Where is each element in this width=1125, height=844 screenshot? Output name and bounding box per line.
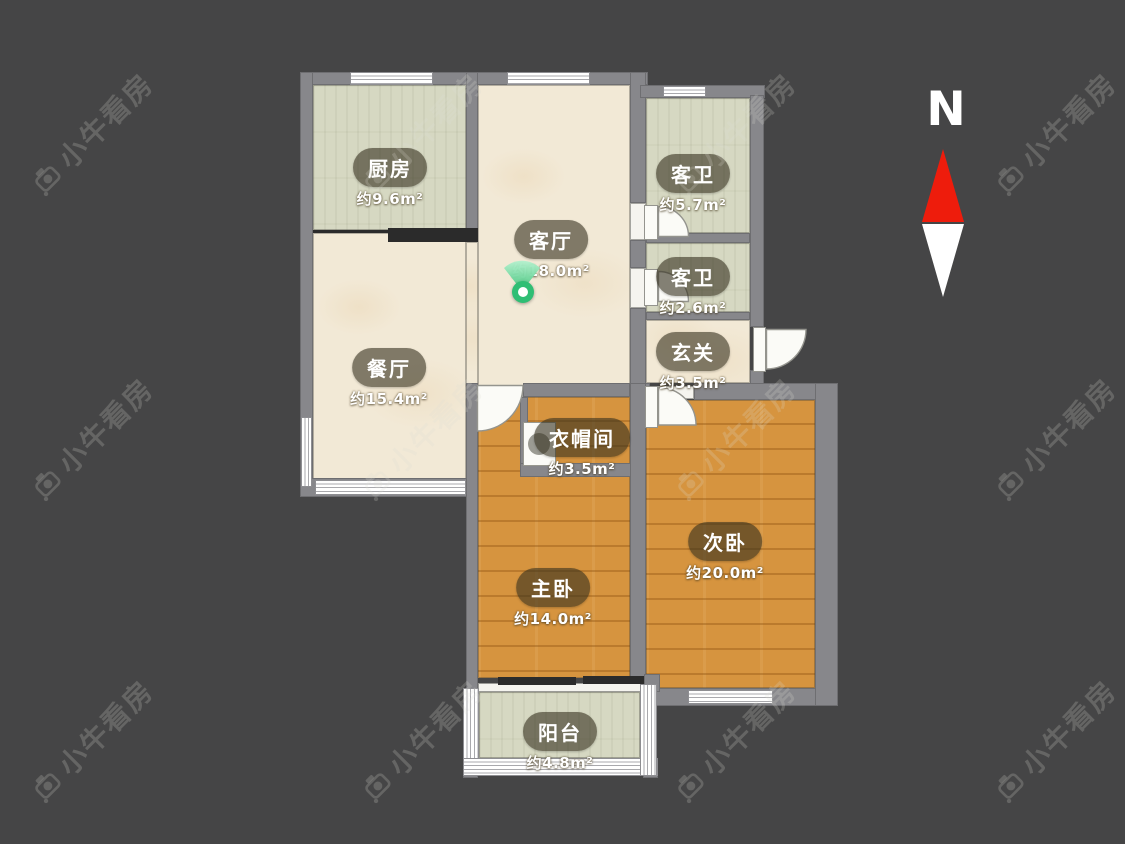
room-area: 约15.4m² [350, 388, 428, 409]
wall [750, 370, 764, 384]
niu-logo-icon [26, 157, 68, 199]
room-name: 次卧 [688, 522, 762, 561]
room-name: 玄关 [656, 332, 730, 371]
room-label-second: 次卧 约20.0m² [686, 522, 764, 583]
niu-logo-icon [26, 764, 68, 806]
master-balcony-window [583, 676, 644, 684]
wall [750, 95, 764, 327]
room-area: 约5.7m² [656, 194, 730, 215]
room-name: 客卫 [656, 257, 730, 296]
room-area: 约2.6m² [656, 297, 730, 318]
watermark-text: 小牛看房 [1011, 670, 1124, 783]
room-area: 约4.8m² [523, 752, 597, 773]
room-area: 约20.0m² [686, 562, 764, 583]
wall [523, 383, 630, 397]
room-name: 主卧 [516, 568, 590, 607]
wall [630, 383, 646, 690]
door-swing-icon [477, 385, 524, 432]
kitchen-opening-threshold [313, 230, 388, 233]
window [688, 690, 773, 704]
watermark: 小牛看房 [985, 654, 1125, 810]
floorplan-canvas: 厨房 约9.6m² 客厅 约18.0m² 餐厅 约15.4m² 客卫 约5.7m… [0, 0, 1125, 844]
room-area: 约14.0m² [514, 608, 592, 629]
location-pin-icon [512, 281, 534, 303]
kitchen-counter-wall [388, 228, 478, 242]
niu-logo-icon [989, 157, 1031, 199]
watermark: 小牛看房 [985, 47, 1125, 203]
room-label-cloakroom: 衣帽间 约3.5m² [534, 418, 630, 479]
watermark-text: 小牛看房 [48, 670, 161, 783]
niu-logo-icon [669, 764, 711, 806]
room-area: 约3.5m² [534, 458, 630, 479]
wall [815, 383, 838, 706]
watermark: 小牛看房 [22, 47, 178, 203]
watermark-text: 小牛看房 [1011, 63, 1124, 176]
niu-logo-icon [989, 764, 1031, 806]
watermark-text: 小牛看房 [1011, 368, 1124, 481]
room-label-bath2: 客卫 约2.6m² [656, 257, 730, 318]
master-balcony-window [498, 677, 576, 685]
window [507, 72, 590, 85]
room-name: 客厅 [514, 220, 588, 259]
compass-south-arrow-icon [922, 224, 964, 297]
compass-north-label: N [916, 82, 976, 137]
watermark: 小牛看房 [22, 654, 178, 810]
entrance-door-swing-icon [766, 329, 807, 370]
niu-logo-icon [26, 462, 68, 504]
room-name: 餐厅 [352, 348, 426, 387]
room-label-balcony: 阳台 约4.8m² [523, 712, 597, 773]
room-area: 约9.6m² [353, 188, 427, 209]
living-dining-open-floor [466, 242, 478, 390]
room-name: 阳台 [523, 712, 597, 751]
room-label-master: 主卧 约14.0m² [514, 568, 592, 629]
niu-logo-icon [989, 462, 1031, 504]
room-label-bath1: 客卫 约5.7m² [656, 154, 730, 215]
window [663, 86, 706, 97]
window [301, 417, 312, 487]
compass-north-arrow-icon [922, 149, 964, 222]
watermark: 小牛看房 [22, 352, 178, 508]
window [350, 72, 433, 85]
balcony-window [640, 684, 657, 776]
window [315, 480, 466, 495]
room-label-foyer: 玄关 约3.5m² [656, 332, 730, 393]
watermark-text: 小牛看房 [48, 368, 161, 481]
room-label-dining: 餐厅 约15.4m² [350, 348, 428, 409]
niu-logo-icon [356, 764, 398, 806]
watermark-text: 小牛看房 [48, 63, 161, 176]
wall [630, 308, 646, 385]
entrance-door-leaf [753, 327, 766, 372]
room-name: 客卫 [656, 154, 730, 193]
wall [630, 240, 646, 268]
room-name: 衣帽间 [534, 418, 630, 457]
watermark: 小牛看房 [985, 352, 1125, 508]
room-area: 约3.5m² [656, 372, 730, 393]
wall [466, 72, 478, 242]
room-name: 厨房 [353, 148, 427, 187]
room-label-kitchen: 厨房 约9.6m² [353, 148, 427, 209]
